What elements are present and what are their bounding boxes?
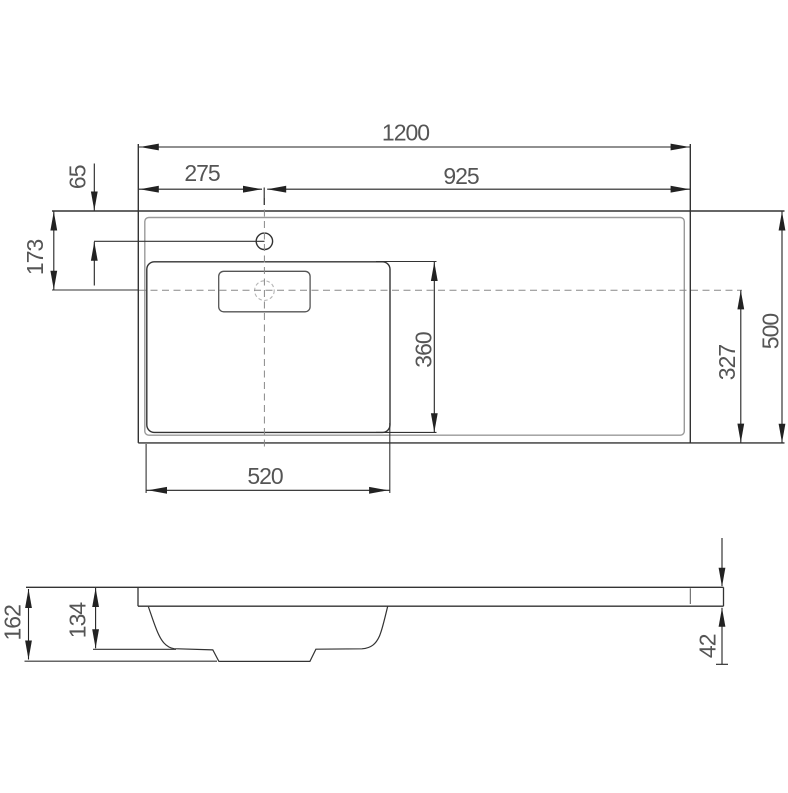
svg-text:275: 275 (184, 160, 220, 186)
svg-text:173: 173 (22, 240, 48, 276)
svg-text:65: 65 (64, 165, 90, 189)
svg-text:500: 500 (758, 314, 784, 350)
svg-text:520: 520 (247, 463, 283, 489)
svg-text:1200: 1200 (382, 120, 429, 146)
svg-text:360: 360 (411, 332, 437, 368)
svg-text:925: 925 (443, 163, 479, 189)
svg-text:327: 327 (714, 345, 740, 381)
svg-text:134: 134 (64, 602, 90, 639)
svg-text:162: 162 (0, 605, 26, 641)
svg-text:42: 42 (695, 634, 721, 658)
